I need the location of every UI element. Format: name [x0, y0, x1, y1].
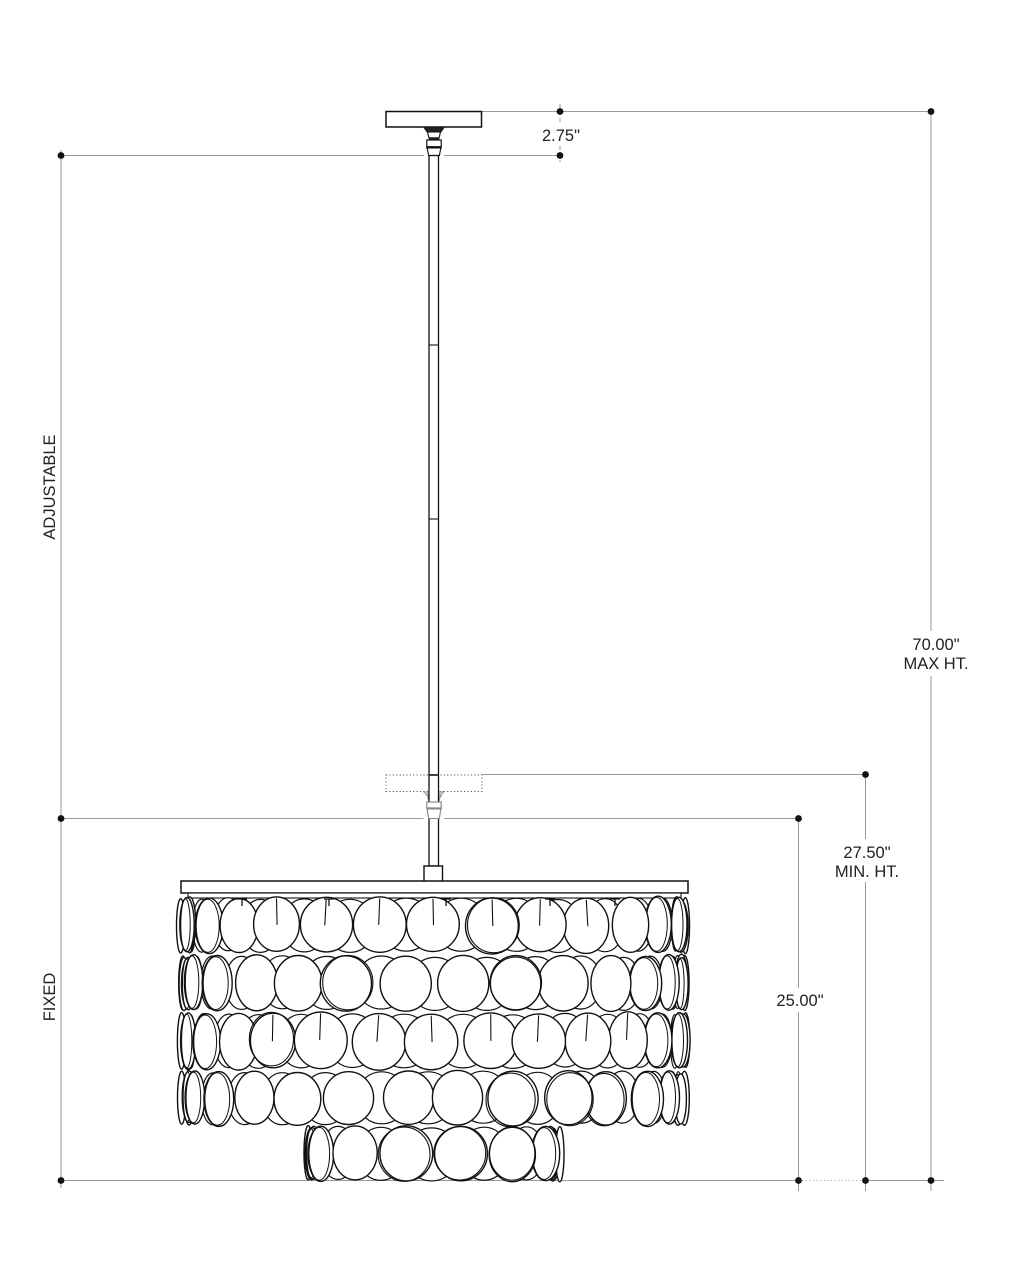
svg-text:25.00": 25.00": [776, 992, 823, 1010]
svg-text:70.00": 70.00": [912, 636, 959, 654]
svg-text:27.50": 27.50": [843, 844, 890, 862]
svg-text:2.75": 2.75": [542, 127, 580, 145]
svg-text:MIN. HT.: MIN. HT.: [835, 863, 899, 881]
svg-text:ADJUSTABLE: ADJUSTABLE: [41, 434, 59, 539]
svg-text:MAX HT.: MAX HT.: [903, 655, 968, 673]
svg-text:FIXED: FIXED: [41, 973, 59, 1022]
